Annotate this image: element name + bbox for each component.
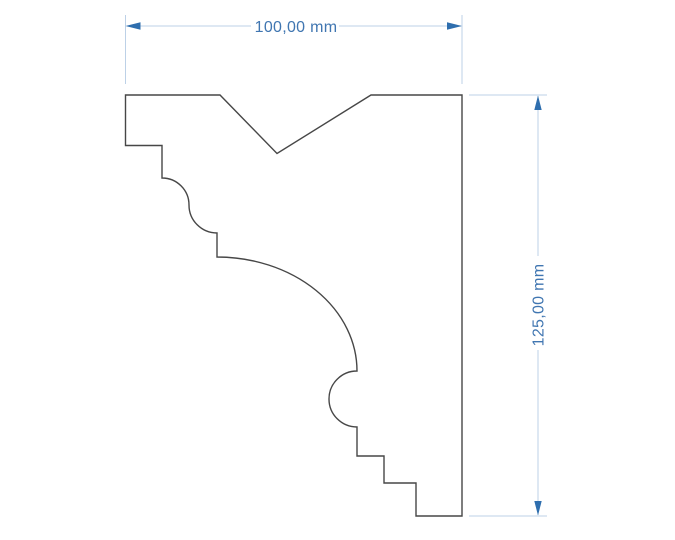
profile-outline (126, 95, 463, 516)
arrow-right-icon (447, 22, 462, 29)
arrow-left-icon (126, 22, 141, 29)
arrow-down-icon (534, 501, 541, 516)
height-dimension-label: 125,00 mm (531, 264, 548, 347)
vertical-dimension: 125,00 mm (469, 95, 548, 516)
arrow-up-icon (534, 96, 541, 111)
cad-drawing: 100,00 mm 125,00 mm (0, 0, 675, 540)
horizontal-dimension: 100,00 mm (126, 15, 463, 84)
width-dimension-label: 100,00 mm (255, 19, 338, 36)
drawing-canvas: 100,00 mm 125,00 mm (0, 0, 675, 540)
